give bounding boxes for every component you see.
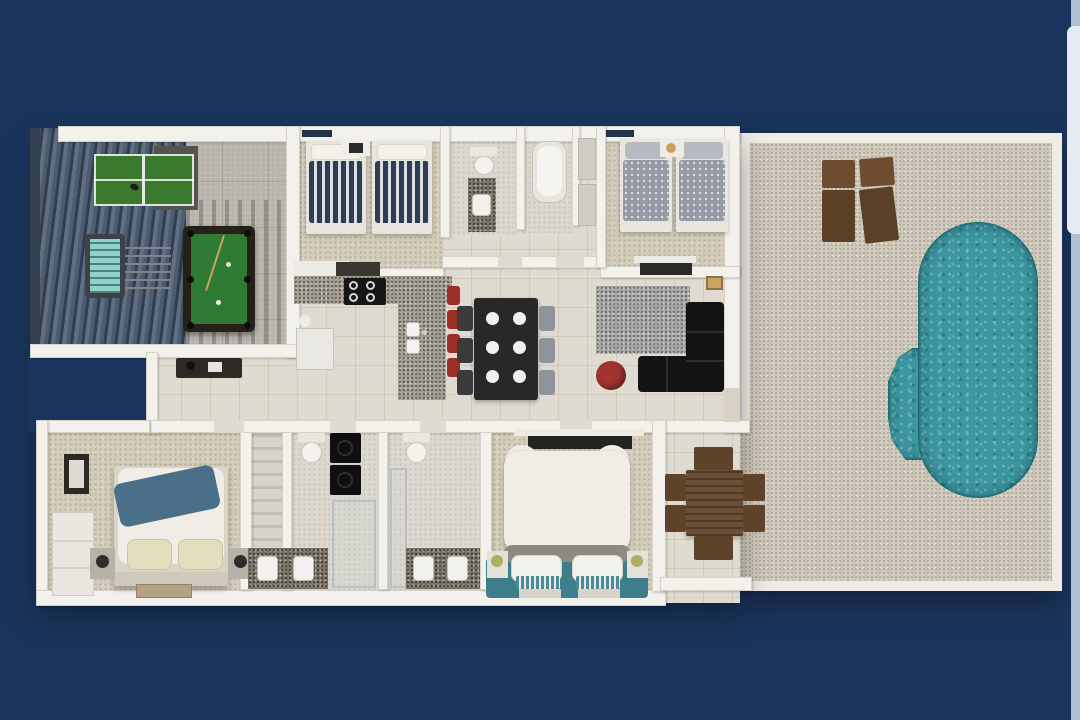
washer-door — [337, 440, 353, 456]
door-hall — [556, 256, 584, 268]
door-bathroom1 — [498, 256, 522, 268]
bath-tub-wall — [516, 126, 525, 230]
toilet-bowl — [474, 156, 494, 175]
pooltable-pocket — [187, 276, 194, 283]
dining-table — [474, 298, 538, 400]
nightstand-lamp-dark — [96, 555, 109, 568]
outdoor-chair — [665, 474, 686, 501]
pooltable-pocket — [244, 322, 251, 329]
tv-console — [640, 263, 692, 275]
plate — [486, 312, 499, 325]
bar-stool-red — [447, 286, 460, 305]
dining-chair-dark — [457, 338, 473, 363]
plate — [513, 341, 526, 354]
pooltable-pocket — [187, 322, 194, 329]
living-rug — [596, 286, 690, 354]
scrollbar-thumb[interactable] — [1067, 26, 1080, 234]
nightstand-lamp-gold — [666, 143, 676, 153]
hall-closet — [578, 138, 596, 180]
sofa-seam — [686, 360, 724, 362]
bedroom3-right-wall — [652, 420, 666, 592]
twin-bed-duvet-navy — [375, 161, 429, 223]
lounger-back — [822, 160, 855, 188]
bedroom2-window — [606, 130, 634, 137]
door-patio — [724, 388, 740, 422]
door-bathroom2 — [330, 420, 356, 433]
outdoor-chair — [743, 474, 765, 501]
master-top-wall — [36, 420, 150, 433]
red-pouf — [596, 361, 626, 390]
foosball-rods — [125, 243, 171, 289]
shower-glass — [332, 500, 376, 588]
console-item-white — [208, 362, 222, 372]
dining-chair-gray — [539, 306, 555, 331]
pooltable-pocket — [244, 276, 251, 283]
wall-picture-inner — [69, 460, 84, 488]
master-left-wall — [36, 420, 48, 606]
pingpong-centerline — [94, 179, 194, 181]
bed3-bench — [578, 589, 620, 598]
outdoor-chair — [694, 447, 733, 470]
pergola-frame — [30, 128, 40, 354]
billiard-ball — [226, 262, 231, 267]
decor-box-gold — [706, 276, 723, 290]
bed3-bench — [519, 589, 561, 598]
sofa-seam — [666, 356, 668, 392]
cue-ball — [216, 300, 221, 305]
outdoor-chair — [743, 505, 765, 532]
toilet-tank — [403, 433, 430, 442]
bed3-teal-sheet — [516, 576, 560, 589]
master-rug — [136, 584, 192, 598]
twin-bed-duvet-navy — [309, 161, 363, 223]
lounger-back — [859, 157, 895, 187]
floor-plan-image — [0, 0, 1080, 720]
wardrobe-panel-line — [52, 540, 94, 542]
swimming-pool — [918, 222, 1038, 498]
twin-bed-duvet-gray — [623, 160, 669, 221]
vanity-sink — [257, 556, 278, 581]
hall-bedroom2-wall — [596, 126, 606, 268]
master-pillow — [127, 539, 172, 570]
gameroom-right-wall — [286, 126, 300, 358]
plate — [513, 312, 526, 325]
twin-bed-duvet-gray — [679, 160, 725, 221]
gameroom-bottom-wall — [30, 344, 298, 358]
sideyard-bottom-wall — [660, 577, 752, 591]
dining-chair-gray — [539, 338, 555, 363]
toilet-tank — [470, 147, 497, 156]
door-master — [214, 420, 244, 433]
bed3-duvet — [504, 451, 630, 553]
sink-basin — [406, 322, 420, 337]
nightstand-radio — [349, 143, 363, 153]
dryer-door — [337, 472, 353, 488]
burner — [349, 293, 358, 302]
sofa-seam — [686, 331, 724, 333]
plate — [513, 370, 526, 383]
nightstand-lamp-dark — [234, 555, 247, 568]
hall-closet — [578, 184, 596, 226]
outdoor-chair — [694, 536, 733, 560]
fridge — [296, 328, 334, 370]
burner — [349, 281, 358, 290]
wardrobe — [52, 512, 94, 596]
faucet — [422, 330, 427, 335]
toilet-bowl — [406, 442, 427, 463]
foosball-field — [90, 239, 120, 293]
bedroom1-bath-wall — [440, 126, 450, 238]
vanity-sink — [472, 194, 491, 216]
vanity-sink — [447, 556, 468, 581]
toilet-tank — [298, 433, 325, 442]
bath-bath-wall — [378, 432, 388, 590]
kitchen-island — [398, 276, 446, 400]
shower-glass — [390, 468, 407, 588]
console-item-dark — [186, 361, 195, 370]
toilet-bowl — [301, 442, 322, 463]
lounger-seat — [859, 186, 899, 244]
bathtub-basin — [537, 146, 562, 196]
nightstand-lamp-green — [491, 555, 503, 567]
plate — [486, 341, 499, 354]
door-bathroom3 — [420, 420, 446, 433]
dining-chair-gray — [539, 370, 555, 395]
tv-shelf — [634, 256, 696, 263]
outdoor-dining-table — [686, 470, 743, 536]
dining-chair-dark — [457, 306, 473, 331]
vanity-sink — [293, 556, 314, 581]
sink-basin — [406, 339, 420, 354]
twin-bed-pillow — [377, 144, 427, 160]
bed3-teal-sheet — [576, 576, 620, 589]
burner — [366, 293, 375, 302]
decor-plate — [299, 315, 311, 327]
vanity-sink — [413, 556, 434, 581]
coffee-machine — [336, 262, 380, 277]
dining-chair-dark — [457, 370, 473, 395]
burner — [366, 281, 375, 290]
lounger-seat — [822, 190, 855, 242]
tv-shelf — [514, 429, 644, 436]
outdoor-chair — [665, 505, 686, 532]
plate — [486, 370, 499, 383]
wardrobe-panel-line — [52, 567, 94, 569]
twin-bed-pillow-gray — [681, 142, 723, 159]
nightstand-lamp-green — [631, 555, 643, 567]
bedroom1-window — [302, 130, 332, 137]
pooltable-pocket — [187, 230, 194, 237]
pooltable-pocket — [244, 230, 251, 237]
master-pillow — [178, 539, 223, 570]
